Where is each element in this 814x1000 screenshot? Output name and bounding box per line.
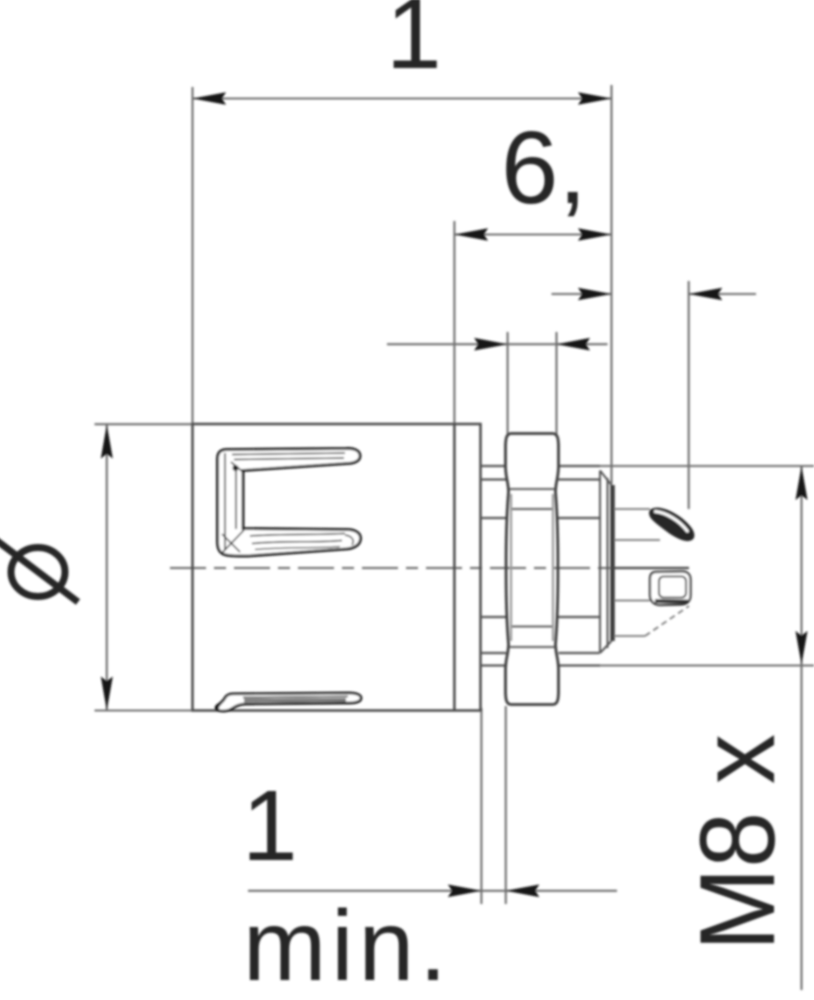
svg-text:1: 1 [386, 0, 442, 90]
svg-text:min.: min. [243, 890, 452, 1000]
svg-text:6,: 6, [501, 110, 587, 225]
svg-text:1: 1 [242, 770, 298, 882]
svg-text:M8 x: M8 x [677, 734, 797, 951]
